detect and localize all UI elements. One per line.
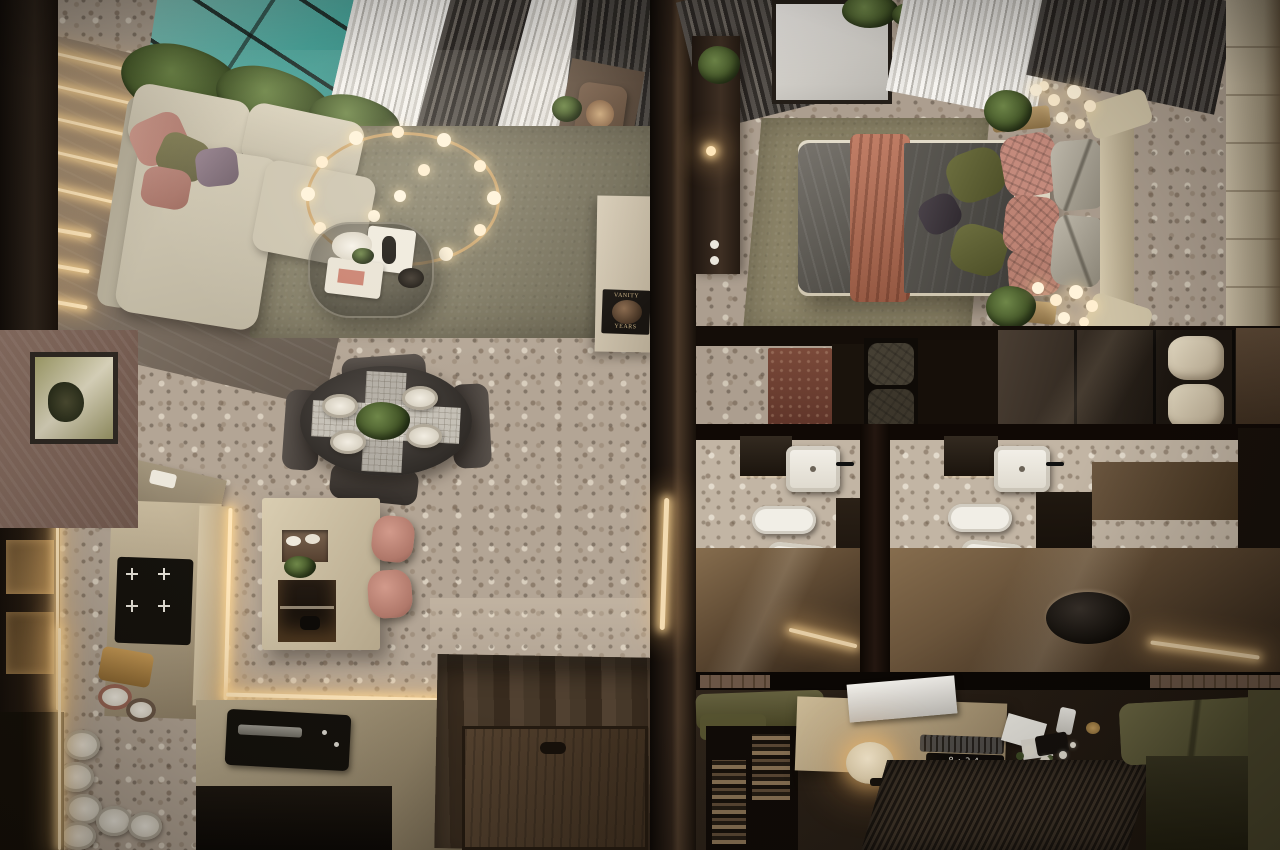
book-stack-1	[712, 760, 746, 844]
central-divider-wall	[650, 0, 698, 850]
niche-glass-shelf	[280, 606, 334, 609]
stacked-plate-1	[64, 730, 100, 760]
round-vase	[398, 268, 424, 288]
burner-3	[124, 598, 140, 614]
bed-duvet-left	[798, 143, 858, 293]
faucet-right	[1046, 462, 1064, 466]
desk-cup	[1086, 722, 1100, 734]
island-niche-dark	[278, 580, 336, 642]
niche-bowl-2	[305, 534, 320, 544]
stacked-plate-6	[128, 812, 162, 840]
bathroom-divider-wall	[860, 424, 890, 674]
bench-cushion-1	[868, 343, 914, 385]
hourglass-decor	[382, 236, 396, 264]
bar-stool-2	[366, 569, 413, 620]
pillow-mauve	[194, 146, 240, 188]
hatch-handle	[540, 742, 566, 754]
led-floor-edge	[58, 628, 61, 850]
place-setting-2	[402, 386, 438, 410]
gold-shelf-2	[6, 612, 54, 674]
island-front-dark	[196, 786, 392, 850]
bathroom-left-sheen	[696, 548, 860, 672]
bed-pillow-gray-2	[1049, 214, 1107, 288]
corridor-runner-rug	[768, 348, 832, 432]
study-sofa-right-arm	[1248, 690, 1280, 850]
console-lamp-glow	[706, 146, 716, 156]
bed-throw-terracotta	[850, 134, 910, 302]
corridor-wall-stub-1	[832, 344, 866, 436]
artwork-motif	[48, 382, 84, 422]
headboard	[1100, 126, 1134, 308]
niche-bowl-1	[286, 536, 301, 546]
sink-drain-right	[1019, 466, 1025, 472]
entry-wall-lightwash	[430, 598, 660, 668]
bar-stool-1	[370, 514, 417, 564]
place-setting-3	[330, 430, 366, 454]
dark-base-cabinet	[0, 712, 64, 850]
place-setting-1	[322, 394, 358, 418]
bedroom-right-wall	[1226, 0, 1280, 334]
burner-2	[156, 566, 172, 582]
faucet-left	[836, 462, 854, 466]
niche-kettle	[300, 616, 320, 630]
apartment-top-down-render: VANITY YEARS	[0, 0, 1280, 850]
chandelier-bulbs	[394, 190, 406, 202]
book-title-bottom: YEARS	[603, 323, 647, 332]
wardrobe-cushion-1	[1168, 336, 1224, 380]
mirror-cabinet-right	[944, 436, 998, 476]
book-bowl	[612, 300, 642, 324]
bedside-lamps-top	[1030, 84, 1042, 96]
corridor-wall-stub-2	[918, 340, 998, 436]
bed-pillow-gray-1	[1049, 138, 1107, 212]
study-striped-rug	[861, 760, 1153, 850]
lantern-dial	[586, 100, 614, 128]
wardrobe-frame-right	[1236, 328, 1280, 438]
console-knob-1	[710, 240, 719, 249]
toilet-right	[948, 504, 1012, 532]
pink-book	[337, 268, 365, 285]
console-knob-2	[710, 256, 719, 265]
place-setting-4	[406, 424, 442, 448]
tall-cabinet-left	[0, 0, 58, 332]
book-stack-2	[752, 734, 790, 800]
cooktop-main	[225, 709, 352, 771]
stacked-plate-4	[60, 822, 96, 850]
desk-flower-greens	[1016, 752, 1024, 760]
round-vanity-stool	[1046, 592, 1130, 644]
desk-keyboard	[920, 735, 1005, 755]
toilet-left	[752, 506, 816, 534]
cooktop-knob-2	[334, 742, 339, 747]
mirror-cabinet-left	[740, 436, 792, 476]
sink-drain-left	[810, 466, 816, 472]
study-brick-strip-right	[1150, 675, 1280, 688]
burner-4	[156, 598, 172, 614]
stacked-plate-5	[96, 806, 132, 836]
food-plate-2	[126, 698, 156, 722]
cooktop-knob-1	[322, 730, 327, 735]
vanity-counter-right	[1092, 462, 1240, 520]
gold-shelf-1	[6, 540, 54, 594]
desk-flowers-white	[1024, 746, 1034, 756]
study-brick-strip-left	[700, 675, 770, 688]
burner-1	[124, 566, 140, 582]
bedside-lamps-bottom	[1032, 282, 1044, 294]
